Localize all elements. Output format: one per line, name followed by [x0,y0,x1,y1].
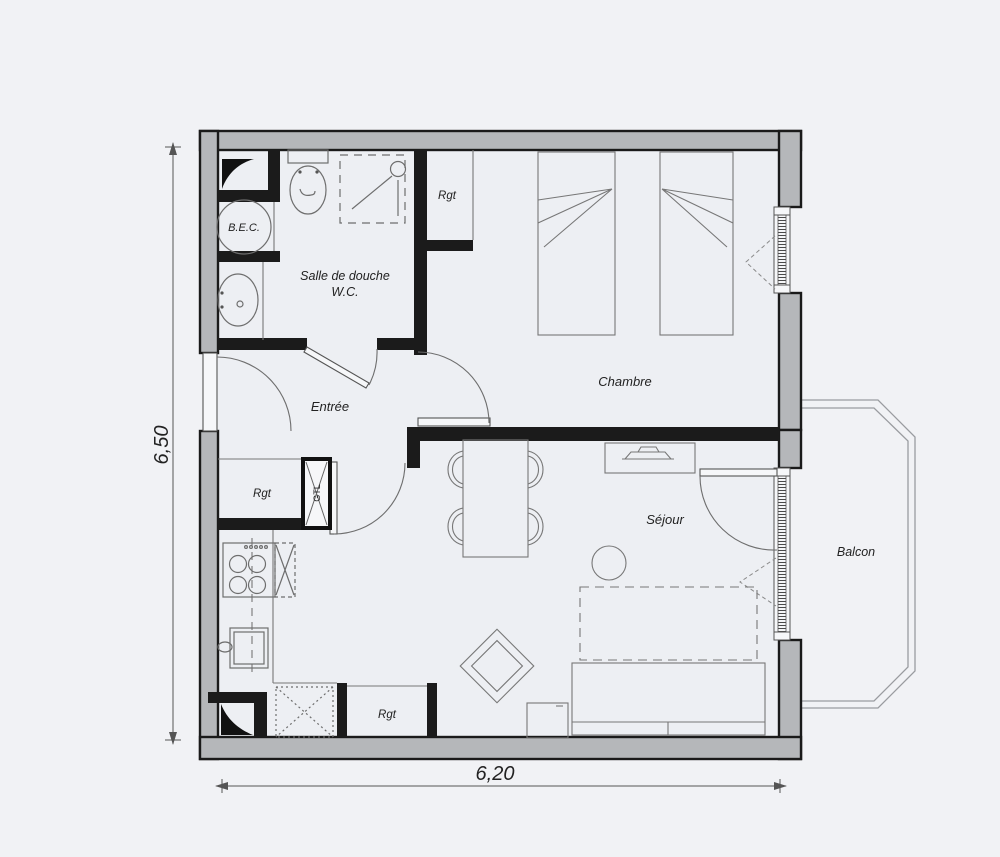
wall-bottom [200,737,801,759]
label-rgt-kitchen: Rgt [253,488,272,500]
wall-right-2 [779,293,801,430]
room-label-balcon: Balcon [837,545,875,559]
wall-sejour-door-stub [407,427,420,468]
floorplan-drawing: Salle de douche W.C. Entrée Chambre Séjo… [0,0,1000,857]
wall-right-1 [779,131,801,207]
room-label-sejour: Séjour [646,512,684,527]
label-rgt-living: Rgt [378,709,397,721]
wall-bath-south-right [377,338,427,350]
dim-label-width: 6,20 [476,763,515,785]
wall-shaft-top [268,149,280,193]
wall-right-3 [779,430,801,468]
wall-chambre-sejour [420,427,779,441]
wall-left-lower [200,431,218,759]
wall-closet-bottom-left [337,683,347,737]
room-label-wc: W.C. [331,285,358,299]
wall-bath-east [414,149,427,355]
room-label-salle-de-douche: Salle de douche [300,269,390,283]
wall-left-upper [200,131,218,353]
wall-closet-chambre [427,240,473,251]
floorplan-page: Salle de douche W.C. Entrée Chambre Séjo… [0,0,1000,857]
dim-label-height: 6,50 [151,426,173,465]
wall-shaft-bottom-right [254,692,267,737]
room-label-chambre: Chambre [598,374,651,389]
room-label-entree: Entrée [311,399,349,414]
wall-bec-bottom [218,251,280,262]
label-gtl: GTL [312,484,322,502]
label-bec: B.E.C. [228,222,260,234]
label-rgt-bathroom: Rgt [438,190,457,202]
dim-arrow-top [169,142,177,155]
wall-closet-bottom-right [427,683,437,737]
wall-top [200,131,801,150]
dim-arrow-bottom [169,732,177,745]
